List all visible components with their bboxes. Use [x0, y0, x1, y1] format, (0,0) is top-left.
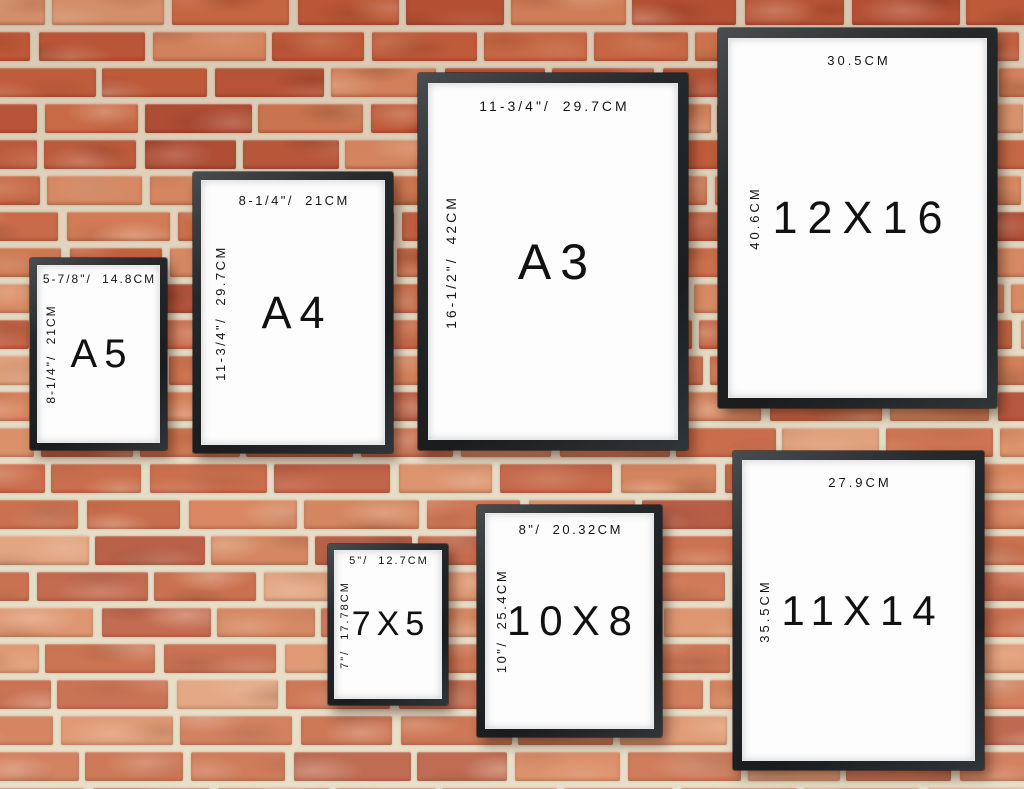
brick [621, 464, 716, 493]
brick [47, 176, 142, 205]
brick [153, 32, 266, 61]
brick [511, 0, 626, 25]
frame-a5-paper: 5-7/8"/ 14.8CM 8-1/4"/ 21CM A5 [37, 265, 160, 443]
frame-a3-paper: 11-3/4"/ 29.7CM 16-1/2"/ 42CM A3 [428, 83, 678, 440]
brick [0, 752, 79, 781]
brick [102, 608, 211, 637]
brick [191, 752, 285, 781]
frame-a3: 11-3/4"/ 29.7CM 16-1/2"/ 42CM A3 [418, 73, 688, 450]
frame-a5: 5-7/8"/ 14.8CM 8-1/4"/ 21CM A5 [30, 258, 167, 450]
frame-12x16-size-name: 12X16 [728, 38, 987, 398]
brick [372, 32, 477, 61]
brick [0, 644, 39, 673]
frame-11x14: 27.9CM 35.5CM 11X14 [733, 451, 984, 770]
brick [298, 0, 399, 25]
frame-a4-paper: 8-1/4"/ 21CM 11-3/4"/ 29.7CM A4 [201, 180, 385, 445]
brick [45, 644, 155, 673]
brick [417, 752, 507, 781]
brick [0, 716, 53, 745]
brick [0, 428, 34, 457]
brick [45, 104, 138, 133]
frame-12x16: 30.5CM 40.6CM 12X16 [718, 28, 997, 408]
frame-10x8-size-name: 10X8 [485, 513, 654, 729]
brick [998, 392, 1024, 421]
frame-10x8-paper: 8"/ 20.32CM 10"/ 25.4CM 10X8 [485, 513, 654, 729]
brick [0, 536, 89, 565]
brick [0, 104, 37, 133]
brick [515, 752, 620, 781]
brick [304, 500, 419, 529]
brick [406, 0, 504, 25]
brick [966, 0, 1024, 25]
brick [172, 0, 289, 25]
brick [37, 572, 148, 601]
brick [180, 716, 292, 745]
brick [215, 68, 324, 97]
brick [0, 284, 30, 313]
brick [594, 32, 688, 61]
brick [0, 320, 29, 349]
frame-10x8: 8"/ 20.32CM 10"/ 25.4CM 10X8 [477, 505, 662, 737]
frame-11x14-size-name: 11X14 [742, 460, 975, 761]
brick [0, 212, 58, 241]
brick [997, 140, 1024, 169]
brick [57, 680, 168, 709]
brick [632, 0, 736, 25]
brick [500, 464, 612, 493]
brick [399, 464, 492, 493]
brick [0, 500, 78, 529]
brick [1011, 284, 1024, 313]
brick [39, 32, 145, 61]
brick [294, 752, 411, 781]
brick [745, 0, 844, 25]
brick [87, 500, 180, 529]
brick [61, 716, 173, 745]
brick [85, 752, 183, 781]
brick [274, 464, 390, 493]
brick [44, 140, 136, 169]
brick [0, 32, 30, 61]
brick [0, 464, 45, 493]
frame-a3-size-name: A3 [428, 83, 678, 440]
brick [67, 212, 170, 241]
brick [145, 104, 252, 133]
brick [484, 32, 587, 61]
brick [102, 68, 207, 97]
brick [999, 68, 1024, 97]
brick [52, 0, 164, 25]
brick [51, 464, 141, 493]
brick [150, 464, 267, 493]
brick [95, 536, 205, 565]
brick [0, 140, 37, 169]
brick [272, 32, 364, 61]
brick [0, 572, 29, 601]
frame-7x5-size-name: 7X5 [334, 550, 442, 699]
frame-7x5-paper: 5"/ 12.7CM 7"/ 17.78CM 7X5 [334, 550, 442, 699]
brick [189, 500, 297, 529]
brick [217, 608, 315, 637]
frame-7x5: 5"/ 12.7CM 7"/ 17.78CM 7X5 [328, 544, 448, 705]
brick [154, 572, 256, 601]
brick [852, 0, 960, 25]
brick [1000, 428, 1024, 457]
brick [258, 104, 363, 133]
frame-a5-size-name: A5 [37, 265, 160, 443]
frame-11x14-paper: 27.9CM 35.5CM 11X14 [742, 460, 975, 761]
brick [0, 176, 40, 205]
frame-12x16-paper: 30.5CM 40.6CM 12X16 [728, 38, 987, 398]
brick [0, 608, 93, 637]
frame-a4-size-name: A4 [201, 180, 385, 445]
brick [301, 716, 392, 745]
brick [0, 680, 51, 709]
frame-size-comparison: 5-7/8"/ 14.8CM 8-1/4"/ 21CM A5 8-1/4"/ 2… [0, 0, 1024, 789]
frame-a4: 8-1/4"/ 21CM 11-3/4"/ 29.7CM A4 [193, 172, 393, 453]
brick [0, 68, 96, 97]
brick [145, 140, 236, 169]
brick [243, 140, 339, 169]
brick [211, 536, 308, 565]
brick [177, 680, 278, 709]
brick [0, 0, 45, 25]
brick [628, 752, 741, 781]
brick [164, 644, 276, 673]
